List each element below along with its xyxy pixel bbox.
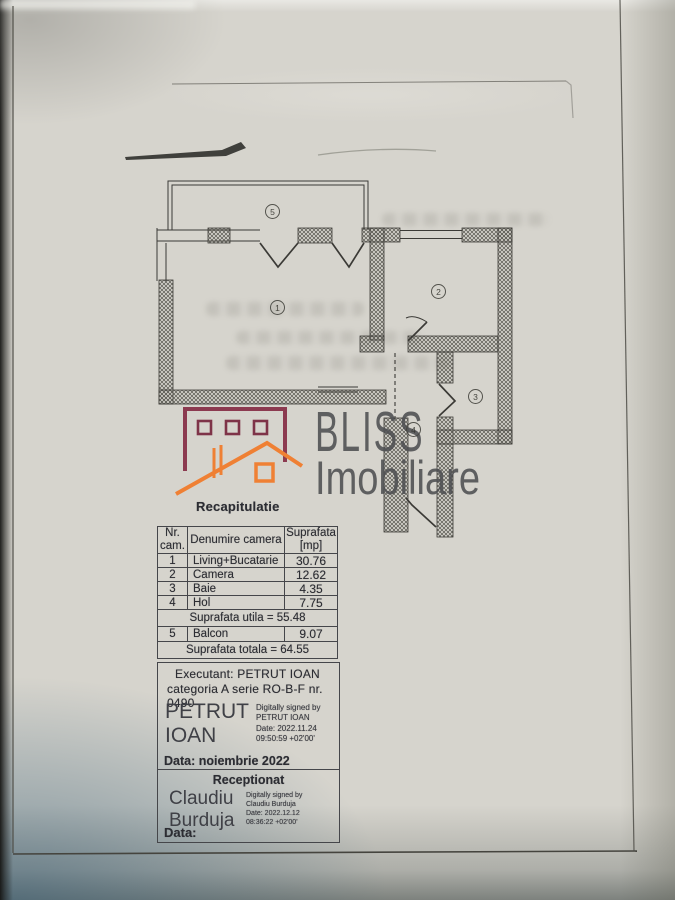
header-nr: Nr. cam. (158, 527, 188, 553)
table-row: 5 Balcon 9.07 (157, 626, 338, 642)
cell-area: 9.07 (285, 627, 337, 641)
scanned-document-photo: BLISS Imobiliare 1 2 3 4 5 Recapitulatie… (0, 0, 675, 900)
reception-signature-details: Digitally signed by Claudiu Burduja Date… (246, 791, 302, 827)
sig-line: Claudiu Burduja (246, 800, 302, 809)
executant-box: Executant: PETRUT IOAN categoria A serie… (157, 662, 340, 770)
sig-line: PETRUT IOAN (256, 713, 320, 723)
cell-name: Baie (188, 582, 285, 595)
cell-name: Balcon (188, 627, 285, 641)
executant-line1: Executant: PETRUT IOAN (175, 667, 320, 681)
executant-signature-details: Digitally signed by PETRUT IOAN Date: 20… (256, 703, 320, 745)
cell-area: 4.35 (285, 582, 337, 595)
sig-line: Date: 2022.12.12 (246, 809, 302, 818)
recap-title: Recapitulatie (196, 499, 280, 514)
table-row: 2 Camera 12.62 (157, 567, 338, 582)
executant-date: Data: noiembrie 2022 (164, 754, 290, 768)
cell-nr: 2 (158, 568, 188, 581)
cell-nr: 4 (158, 596, 188, 609)
cell-nr: 5 (158, 627, 188, 641)
cell-nr: 1 (158, 554, 188, 567)
room-number-hol: 4 (406, 422, 421, 437)
cell-area: 30.76 (285, 554, 337, 567)
room-number-balcon: 5 (265, 204, 280, 219)
cell-name: Living+Bucatarie (188, 554, 285, 567)
cell-name: Hol (188, 596, 285, 609)
sig-line: Date: 2022.11.24 (256, 724, 320, 734)
room-number-camera: 2 (431, 284, 446, 299)
bliss-logo-house (176, 409, 302, 494)
cell-area: 7.75 (285, 596, 337, 609)
sig-line: 08:36:22 +02'00' (246, 818, 302, 827)
table-row: 1 Living+Bucatarie 30.76 (157, 553, 338, 568)
cell-nr: 3 (158, 582, 188, 595)
sig-line: 09:50:59 +02'00' (256, 734, 320, 744)
watermark-brand-subname: Imobiliare (315, 454, 480, 501)
reception-box: Receptionat Claudiu Burduja Digitally si… (157, 769, 340, 843)
recap-table: Nr. cam. Denumire camera Suprafata [mp] … (157, 526, 338, 659)
window-walls (157, 228, 462, 392)
cell-area: 12.62 (285, 568, 337, 581)
pen-streak-marks (125, 142, 436, 160)
total-row: Suprafata totala = 64.55 (157, 641, 338, 659)
room-number-baie: 3 (468, 389, 483, 404)
executant-signature-name: PETRUT IOAN (165, 700, 265, 747)
room-number-living: 1 (270, 300, 285, 315)
table-row: 3 Baie 4.35 (157, 581, 338, 596)
subtotal-row: Suprafata utila = 55.48 (157, 609, 338, 627)
reception-date: Data: (164, 825, 197, 840)
sig-line: Digitally signed by (246, 791, 302, 800)
reception-title: Receptionat (158, 773, 339, 787)
table-header-row: Nr. cam. Denumire camera Suprafata [mp] (157, 526, 338, 554)
table-row: 4 Hol 7.75 (157, 595, 338, 610)
sig-line: Digitally signed by (256, 703, 320, 713)
cell-name: Camera (188, 568, 285, 581)
header-suprafata: Suprafata [mp] (285, 527, 337, 553)
header-denumire: Denumire camera (188, 527, 285, 553)
